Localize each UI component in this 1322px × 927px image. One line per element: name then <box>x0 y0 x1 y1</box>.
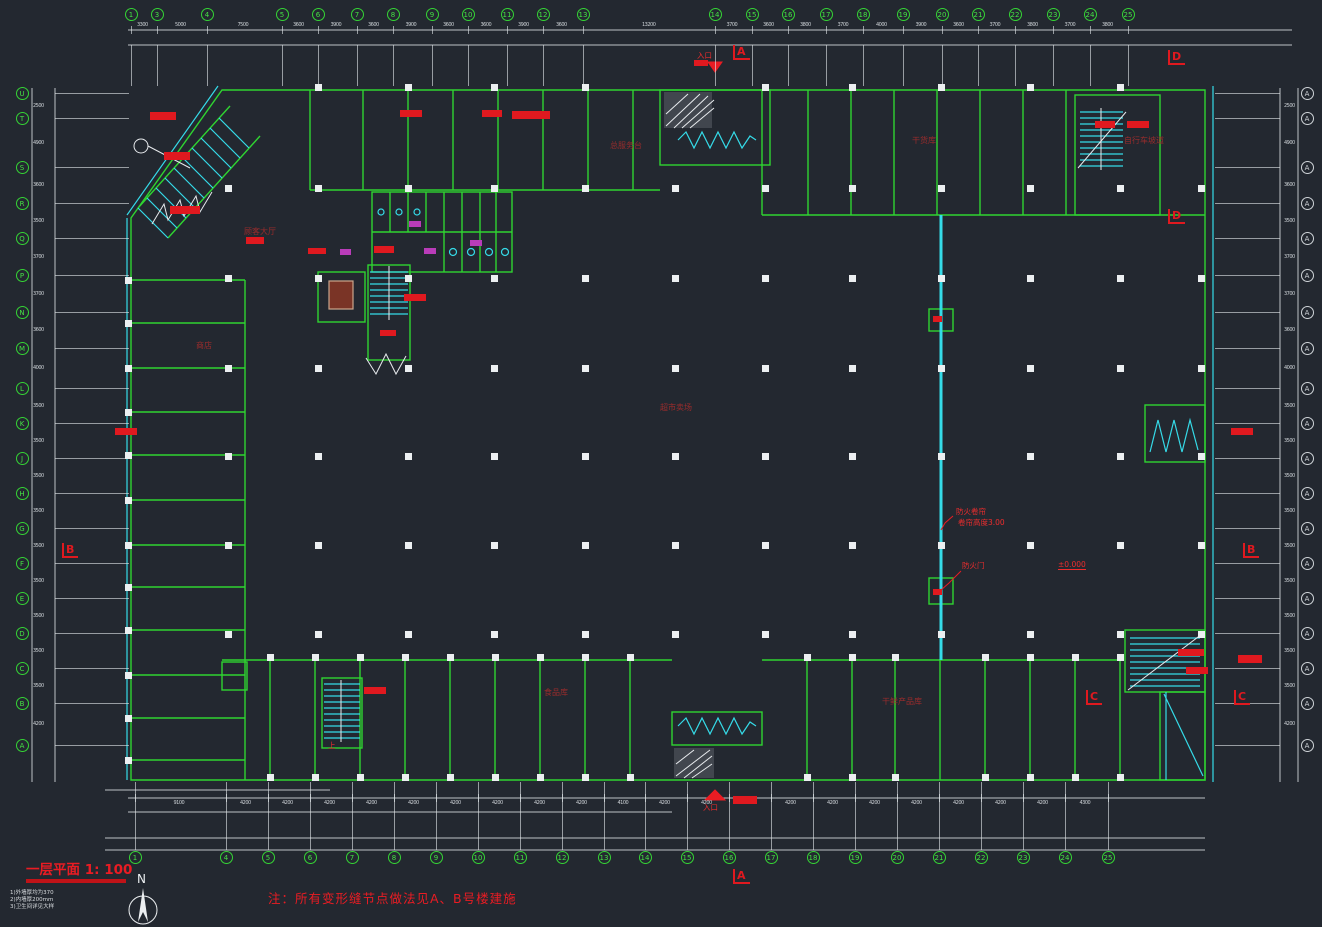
grid-leader-top <box>715 45 716 86</box>
dim-tick-top <box>393 26 394 34</box>
grid-bubble-top: 11 <box>501 8 514 21</box>
column <box>491 275 498 282</box>
grid-leader-left <box>55 703 129 704</box>
grid-bubble-left: A <box>16 739 29 752</box>
grid-leader-left <box>55 275 129 276</box>
dimension-text-bottom: 4200 <box>408 800 419 806</box>
grid-leader-top <box>393 45 394 86</box>
grid-leader-top <box>507 45 508 86</box>
grid-bubble-bottom: 14 <box>639 851 652 864</box>
wall-column <box>804 654 811 661</box>
grid-leader-left <box>55 388 129 389</box>
dimension-text-top: 3700 <box>1065 22 1076 28</box>
dim-tick-top <box>788 26 789 34</box>
dim-tick-bottom <box>813 794 814 802</box>
column <box>225 453 232 460</box>
grid-leader-top <box>543 45 544 86</box>
dimension-text-left: 4000 <box>33 365 44 371</box>
dim-tick-top <box>507 26 508 34</box>
dimension-text-right: 3500 <box>1284 438 1295 444</box>
dimension-text-right: 4900 <box>1284 140 1295 146</box>
dimension-text-right: 3500 <box>1284 578 1295 584</box>
grid-bubble-left: H <box>16 487 29 500</box>
wall-column <box>582 654 589 661</box>
red-label-blob <box>246 237 264 244</box>
column <box>582 542 589 549</box>
column <box>672 185 679 192</box>
wall-column <box>892 654 899 661</box>
column <box>1027 453 1034 460</box>
grid-leader-right <box>1215 348 1280 349</box>
dim-tick-bottom <box>268 794 269 802</box>
wall-column <box>492 774 499 781</box>
dim-tick-top <box>942 26 943 34</box>
dimension-text-bottom: 4200 <box>827 800 838 806</box>
column <box>405 453 412 460</box>
grid-bubble-right: A <box>1301 232 1314 245</box>
red-label-blob <box>1231 428 1253 435</box>
grid-leader-left <box>55 668 129 669</box>
grid-leader-top <box>157 45 158 86</box>
wall-column <box>1198 185 1205 192</box>
wall-column <box>125 497 132 504</box>
wall-column <box>938 84 945 91</box>
column <box>315 275 322 282</box>
magenta-fixture-blob <box>340 249 351 255</box>
grid-leader-top <box>131 45 132 86</box>
column <box>405 185 412 192</box>
column <box>491 453 498 460</box>
grid-bubble-right: A <box>1301 592 1314 605</box>
section-marker-C: C <box>1086 690 1102 705</box>
wall-column <box>125 715 132 722</box>
grid-leader-bottom <box>352 782 353 850</box>
wall-column <box>125 452 132 459</box>
column <box>1027 542 1034 549</box>
grid-bubble-right: A <box>1301 487 1314 500</box>
column <box>225 365 232 372</box>
grid-bubble-left: L <box>16 382 29 395</box>
grid-leader-bottom <box>813 782 814 850</box>
wall-column <box>357 774 364 781</box>
room-label: 商店 <box>196 340 212 351</box>
column <box>315 185 322 192</box>
wall-column <box>1027 774 1034 781</box>
grid-bubble-bottom: 20 <box>891 851 904 864</box>
grid-bubble-bottom: 17 <box>765 851 778 864</box>
dimension-text-bottom: 4200 <box>534 800 545 806</box>
dimension-text-top: 3900 <box>406 22 417 28</box>
column <box>1027 631 1034 638</box>
grid-leader-top <box>583 45 584 86</box>
dim-tick-bottom <box>135 794 136 802</box>
red-label-blob <box>933 316 942 322</box>
grid-leader-bottom <box>687 782 688 850</box>
wall-column <box>402 654 409 661</box>
grid-leader-left <box>55 563 129 564</box>
grid-bubble-left: N <box>16 306 29 319</box>
dimension-text-right: 3500 <box>1284 648 1295 654</box>
grid-leader-right <box>1215 563 1280 564</box>
red-label-blob <box>512 111 550 119</box>
grid-leader-bottom <box>478 782 479 850</box>
red-label-blob <box>364 687 386 694</box>
dim-tick-bottom <box>1065 794 1066 802</box>
grid-bubble-bottom: 12 <box>556 851 569 864</box>
grid-leader-bottom <box>268 782 269 850</box>
column <box>405 631 412 638</box>
wall-column <box>125 409 132 416</box>
grid-leader-left <box>55 458 129 459</box>
red-label-blob <box>164 152 190 160</box>
wall-column <box>582 774 589 781</box>
grid-bubble-bottom: 24 <box>1059 851 1072 864</box>
column <box>762 453 769 460</box>
grid-bubble-bottom: 23 <box>1017 851 1030 864</box>
dimension-text-top: 7500 <box>238 22 249 28</box>
grid-bubble-bottom: 16 <box>723 851 736 864</box>
dim-tick-bottom <box>939 794 940 802</box>
grid-leader-left <box>55 348 129 349</box>
dimension-text-top: 3800 <box>1102 22 1113 28</box>
wall-column <box>1072 774 1079 781</box>
grid-bubble-bottom: 25 <box>1102 851 1115 864</box>
dimension-text-bottom: 4200 <box>324 800 335 806</box>
column <box>582 185 589 192</box>
dimension-text-left: 3500 <box>33 473 44 479</box>
wall-column <box>125 542 132 549</box>
grid-bubble-left: R <box>16 197 29 210</box>
column <box>762 631 769 638</box>
grid-leader-top <box>318 45 319 86</box>
grid-bubble-right: A <box>1301 739 1314 752</box>
grid-leader-right <box>1215 167 1280 168</box>
wall-column <box>982 654 989 661</box>
grid-leader-bottom <box>520 782 521 850</box>
dim-tick-top <box>357 26 358 34</box>
dimension-text-right: 4200 <box>1284 721 1295 727</box>
grid-leader-right <box>1215 668 1280 669</box>
column <box>762 542 769 549</box>
red-label-blob <box>1127 121 1149 128</box>
grid-leader-right <box>1215 493 1280 494</box>
wall-column <box>762 84 769 91</box>
column <box>491 365 498 372</box>
dimension-text-top: 3900 <box>518 22 529 28</box>
grid-bubble-top: 15 <box>746 8 759 21</box>
wall-column <box>1117 774 1124 781</box>
grid-leader-bottom <box>1023 782 1024 850</box>
dimension-text-right: 3500 <box>1284 218 1295 224</box>
red-label-blob <box>1238 655 1262 663</box>
grid-bubble-right: A <box>1301 557 1314 570</box>
dim-tick-bottom <box>855 794 856 802</box>
north-label: N <box>137 872 146 886</box>
grid-leader-top <box>432 45 433 86</box>
dimension-text-left: 3600 <box>33 182 44 188</box>
dimension-text-top: 3700 <box>838 22 849 28</box>
dimension-text-right: 3700 <box>1284 291 1295 297</box>
grid-leader-right <box>1215 633 1280 634</box>
dimension-text-right: 3500 <box>1284 403 1295 409</box>
column <box>225 631 232 638</box>
title-underline <box>26 879 126 883</box>
grid-bubble-left: J <box>16 452 29 465</box>
section-marker-D: D <box>1168 209 1185 224</box>
grid-bubble-top: 10 <box>462 8 475 21</box>
grid-leader-top <box>863 45 864 86</box>
dimension-text-top: 5000 <box>175 22 186 28</box>
section-marker-B: B <box>1243 543 1259 558</box>
dimension-text-left: 3600 <box>33 327 44 333</box>
dim-tick-bottom <box>352 794 353 802</box>
column <box>1117 185 1124 192</box>
dimension-text-bottom: 4200 <box>911 800 922 806</box>
wall-column <box>982 774 989 781</box>
dim-tick-top <box>826 26 827 34</box>
wall-column <box>849 654 856 661</box>
column <box>849 453 856 460</box>
dim-tick-bottom <box>897 794 898 802</box>
dim-tick-bottom <box>562 794 563 802</box>
dimension-text-right: 3500 <box>1284 508 1295 514</box>
column <box>762 275 769 282</box>
annotation: 入口 <box>703 802 718 813</box>
dim-tick-bottom <box>729 794 730 802</box>
wall-column <box>312 654 319 661</box>
room-label: 干货库 <box>912 135 936 146</box>
dimension-text-bottom: 4200 <box>995 800 1006 806</box>
grid-bubble-bottom: 4 <box>220 851 233 864</box>
red-label-blob <box>404 294 426 301</box>
wall-column <box>537 654 544 661</box>
column <box>762 365 769 372</box>
grid-leader-top <box>826 45 827 86</box>
wall-column <box>1027 654 1034 661</box>
wall-column <box>1198 542 1205 549</box>
magenta-fixture-blob <box>470 240 482 246</box>
grid-bubble-top: 12 <box>537 8 550 21</box>
column <box>849 185 856 192</box>
grid-bubble-bottom: 10 <box>472 851 485 864</box>
section-marker-A: A <box>733 45 750 60</box>
grid-leader-bottom <box>394 782 395 850</box>
section-marker-C: C <box>1234 690 1250 705</box>
column <box>672 631 679 638</box>
column <box>315 453 322 460</box>
section-marker-A: A <box>733 869 750 884</box>
dim-tick-bottom <box>687 794 688 802</box>
red-label-blob <box>1178 649 1204 656</box>
dim-tick-top <box>432 26 433 34</box>
column <box>582 365 589 372</box>
wall-column <box>1117 84 1124 91</box>
grid-bubble-left: U <box>16 87 29 100</box>
grid-leader-top <box>357 45 358 86</box>
grid-bubble-left: B <box>16 697 29 710</box>
cad-canvas[interactable]: 一层平面 1: 100 1)外墙厚均为370 2)内墙厚200mm 3)卫生间详… <box>0 0 1322 927</box>
dimension-text-bottom: 4200 <box>659 800 670 806</box>
wall-column <box>125 277 132 284</box>
dimension-text-bottom: 4200 <box>450 800 461 806</box>
wall-column <box>405 84 412 91</box>
column <box>1117 631 1124 638</box>
dimension-text-top: 3600 <box>556 22 567 28</box>
grid-bubble-left: G <box>16 522 29 535</box>
column <box>1027 365 1034 372</box>
grid-bubble-bottom: 11 <box>514 851 527 864</box>
magenta-fixture-blob <box>424 248 436 254</box>
grid-leader-top <box>1053 45 1054 86</box>
column <box>938 185 945 192</box>
grid-leader-left <box>55 423 129 424</box>
grid-bubble-left: D <box>16 627 29 640</box>
grid-bubble-right: A <box>1301 112 1314 125</box>
grid-leader-left <box>55 312 129 313</box>
grid-leader-bottom <box>855 782 856 850</box>
column <box>672 453 679 460</box>
annotation: 上 <box>328 740 336 751</box>
grid-bubble-bottom: 9 <box>430 851 443 864</box>
grid-leader-right <box>1215 528 1280 529</box>
dim-tick-top <box>752 26 753 34</box>
annotation: 入口 <box>697 50 712 61</box>
grid-bubble-left: E <box>16 592 29 605</box>
room-label: 超市卖场 <box>660 402 692 413</box>
dimension-text-left: 2500 <box>33 103 44 109</box>
grid-leader-top <box>752 45 753 86</box>
grid-leader-left <box>55 745 129 746</box>
grid-bubble-top: 7 <box>351 8 364 21</box>
wall-column <box>849 84 856 91</box>
grid-leader-right <box>1215 423 1280 424</box>
grid-bubble-top: 13 <box>577 8 590 21</box>
annotation: ±0.000 <box>1058 560 1086 570</box>
grid-bubble-right: A <box>1301 417 1314 430</box>
red-label-blob <box>380 330 396 336</box>
dimension-text-left: 3500 <box>33 648 44 654</box>
grid-bubble-top: 14 <box>709 8 722 21</box>
column <box>849 275 856 282</box>
grid-leader-bottom <box>771 782 772 850</box>
column <box>491 542 498 549</box>
grid-leader-left <box>55 118 129 119</box>
dim-tick-bottom <box>520 794 521 802</box>
column <box>849 631 856 638</box>
grid-bubble-top: 17 <box>820 8 833 21</box>
column <box>405 275 412 282</box>
column <box>225 275 232 282</box>
wall-column <box>627 654 634 661</box>
grid-leader-top <box>903 45 904 86</box>
dim-tick-top <box>1090 26 1091 34</box>
grid-leader-left <box>55 528 129 529</box>
grid-leader-right <box>1215 118 1280 119</box>
general-note: 注：所有变形缝节点做法见A、B号楼建施 <box>268 888 517 907</box>
dim-tick-top <box>207 26 208 34</box>
dim-tick-top <box>583 26 584 34</box>
grid-bubble-left: P <box>16 269 29 282</box>
dim-tick-top <box>131 26 132 34</box>
column <box>1117 275 1124 282</box>
room-label: 总服务台 <box>610 140 642 151</box>
column <box>1027 185 1034 192</box>
wall-column <box>267 654 274 661</box>
column <box>405 365 412 372</box>
dimension-text-top: 3900 <box>331 22 342 28</box>
dimension-text-top: 3900 <box>916 22 927 28</box>
wall-column <box>125 757 132 764</box>
grid-bubble-bottom: 7 <box>346 851 359 864</box>
grid-leader-top <box>978 45 979 86</box>
dim-tick-bottom <box>604 794 605 802</box>
dimension-text-right: 2500 <box>1284 103 1295 109</box>
wall-column <box>849 774 856 781</box>
wall-column <box>267 774 274 781</box>
grid-leader-left <box>55 493 129 494</box>
wall-column <box>537 774 544 781</box>
dimension-text-left: 4200 <box>33 721 44 727</box>
grid-leader-right <box>1215 203 1280 204</box>
dimension-text-bottom: 4200 <box>953 800 964 806</box>
grid-leader-bottom <box>436 782 437 850</box>
grid-leader-left <box>55 598 129 599</box>
grid-bubble-right: A <box>1301 697 1314 710</box>
dimension-text-left: 3700 <box>33 291 44 297</box>
wall-column <box>1027 84 1034 91</box>
dimension-text-right: 4000 <box>1284 365 1295 371</box>
dimension-text-top: 13200 <box>642 22 655 28</box>
grid-bubble-bottom: 21 <box>933 851 946 864</box>
grid-leader-right <box>1215 458 1280 459</box>
dim-tick-top <box>978 26 979 34</box>
grid-bubble-top: 20 <box>936 8 949 21</box>
dimension-text-top: 3800 <box>1027 22 1038 28</box>
grid-bubble-right: A <box>1301 522 1314 535</box>
dim-tick-top <box>863 26 864 34</box>
dimension-text-right: 3600 <box>1284 182 1295 188</box>
grid-bubble-left: F <box>16 557 29 570</box>
room-label: 顾客大厅 <box>244 226 276 237</box>
column <box>225 542 232 549</box>
grid-bubble-right: A <box>1301 87 1314 100</box>
drawing-title: 一层平面 1: 100 <box>26 858 132 878</box>
wall-column <box>582 84 589 91</box>
grid-bubble-right: A <box>1301 306 1314 319</box>
red-label-blob <box>1186 667 1208 674</box>
column <box>938 365 945 372</box>
wall-column <box>447 774 454 781</box>
red-label-blob <box>374 246 394 253</box>
grid-leader-bottom <box>604 782 605 850</box>
dim-tick-top <box>903 26 904 34</box>
dimension-text-left: 3500 <box>33 543 44 549</box>
wall-column <box>357 654 364 661</box>
column <box>672 275 679 282</box>
annotation: 防火门 <box>962 560 985 571</box>
grid-leader-right <box>1215 312 1280 313</box>
column <box>938 453 945 460</box>
wall-column <box>402 774 409 781</box>
grid-bubble-top: 16 <box>782 8 795 21</box>
dimension-text-top: 3600 <box>443 22 454 28</box>
dimension-text-left: 4900 <box>33 140 44 146</box>
grid-leader-top <box>1090 45 1091 86</box>
dimension-text-right: 3600 <box>1284 327 1295 333</box>
wall-column <box>1198 631 1205 638</box>
red-label-blob <box>400 110 422 117</box>
red-label-blob <box>733 796 757 804</box>
